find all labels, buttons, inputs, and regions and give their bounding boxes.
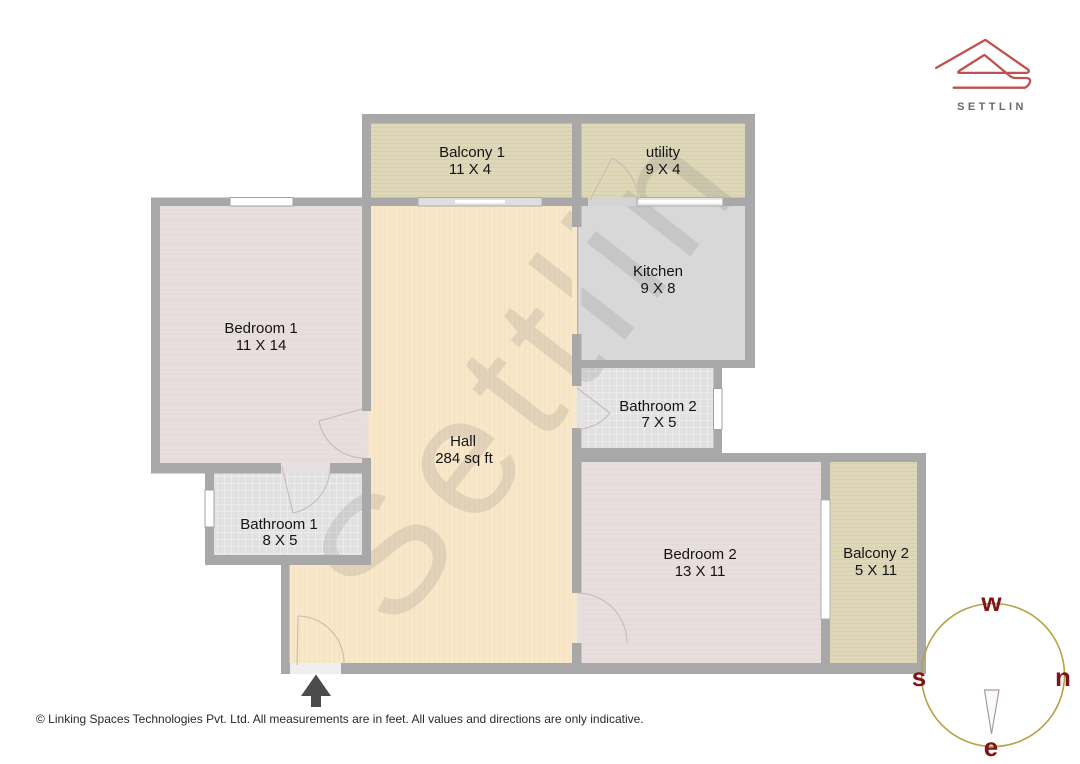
svg-text:e: e (984, 732, 998, 762)
svg-text:9 X 8: 9 X 8 (640, 280, 675, 297)
svg-text:8 X 5: 8 X 5 (262, 532, 297, 549)
svg-text:Bedroom 1: Bedroom 1 (224, 320, 297, 337)
svg-text:SETTLIN: SETTLIN (957, 101, 1027, 113)
svg-text:Kitchen: Kitchen (633, 263, 683, 280)
svg-text:w: w (980, 587, 1002, 617)
svg-text:utility: utility (646, 144, 681, 161)
svg-text:13 X 11: 13 X 11 (675, 563, 726, 580)
svg-text:Bedroom 2: Bedroom 2 (663, 546, 736, 563)
svg-text:Balcony 2: Balcony 2 (843, 545, 909, 562)
svg-text:11 X 14: 11 X 14 (236, 337, 287, 354)
svg-text:Balcony 1: Balcony 1 (439, 144, 505, 161)
svg-text:n: n (1055, 662, 1071, 692)
svg-text:Hall: Hall (450, 433, 476, 450)
svg-text:s: s (912, 662, 926, 692)
svg-text:5 X 11: 5 X 11 (855, 562, 897, 579)
svg-text:© Linking Spaces Technologies: © Linking Spaces Technologies Pvt. Ltd. … (36, 712, 644, 726)
svg-text:Bathroom 2: Bathroom 2 (619, 398, 697, 415)
svg-text:Bathroom 1: Bathroom 1 (240, 516, 318, 533)
svg-text:284 sq ft: 284 sq ft (435, 450, 493, 467)
svg-text:7 X 5: 7 X 5 (641, 414, 676, 431)
svg-text:9 X 4: 9 X 4 (645, 161, 680, 178)
svg-text:11 X 4: 11 X 4 (449, 161, 491, 178)
